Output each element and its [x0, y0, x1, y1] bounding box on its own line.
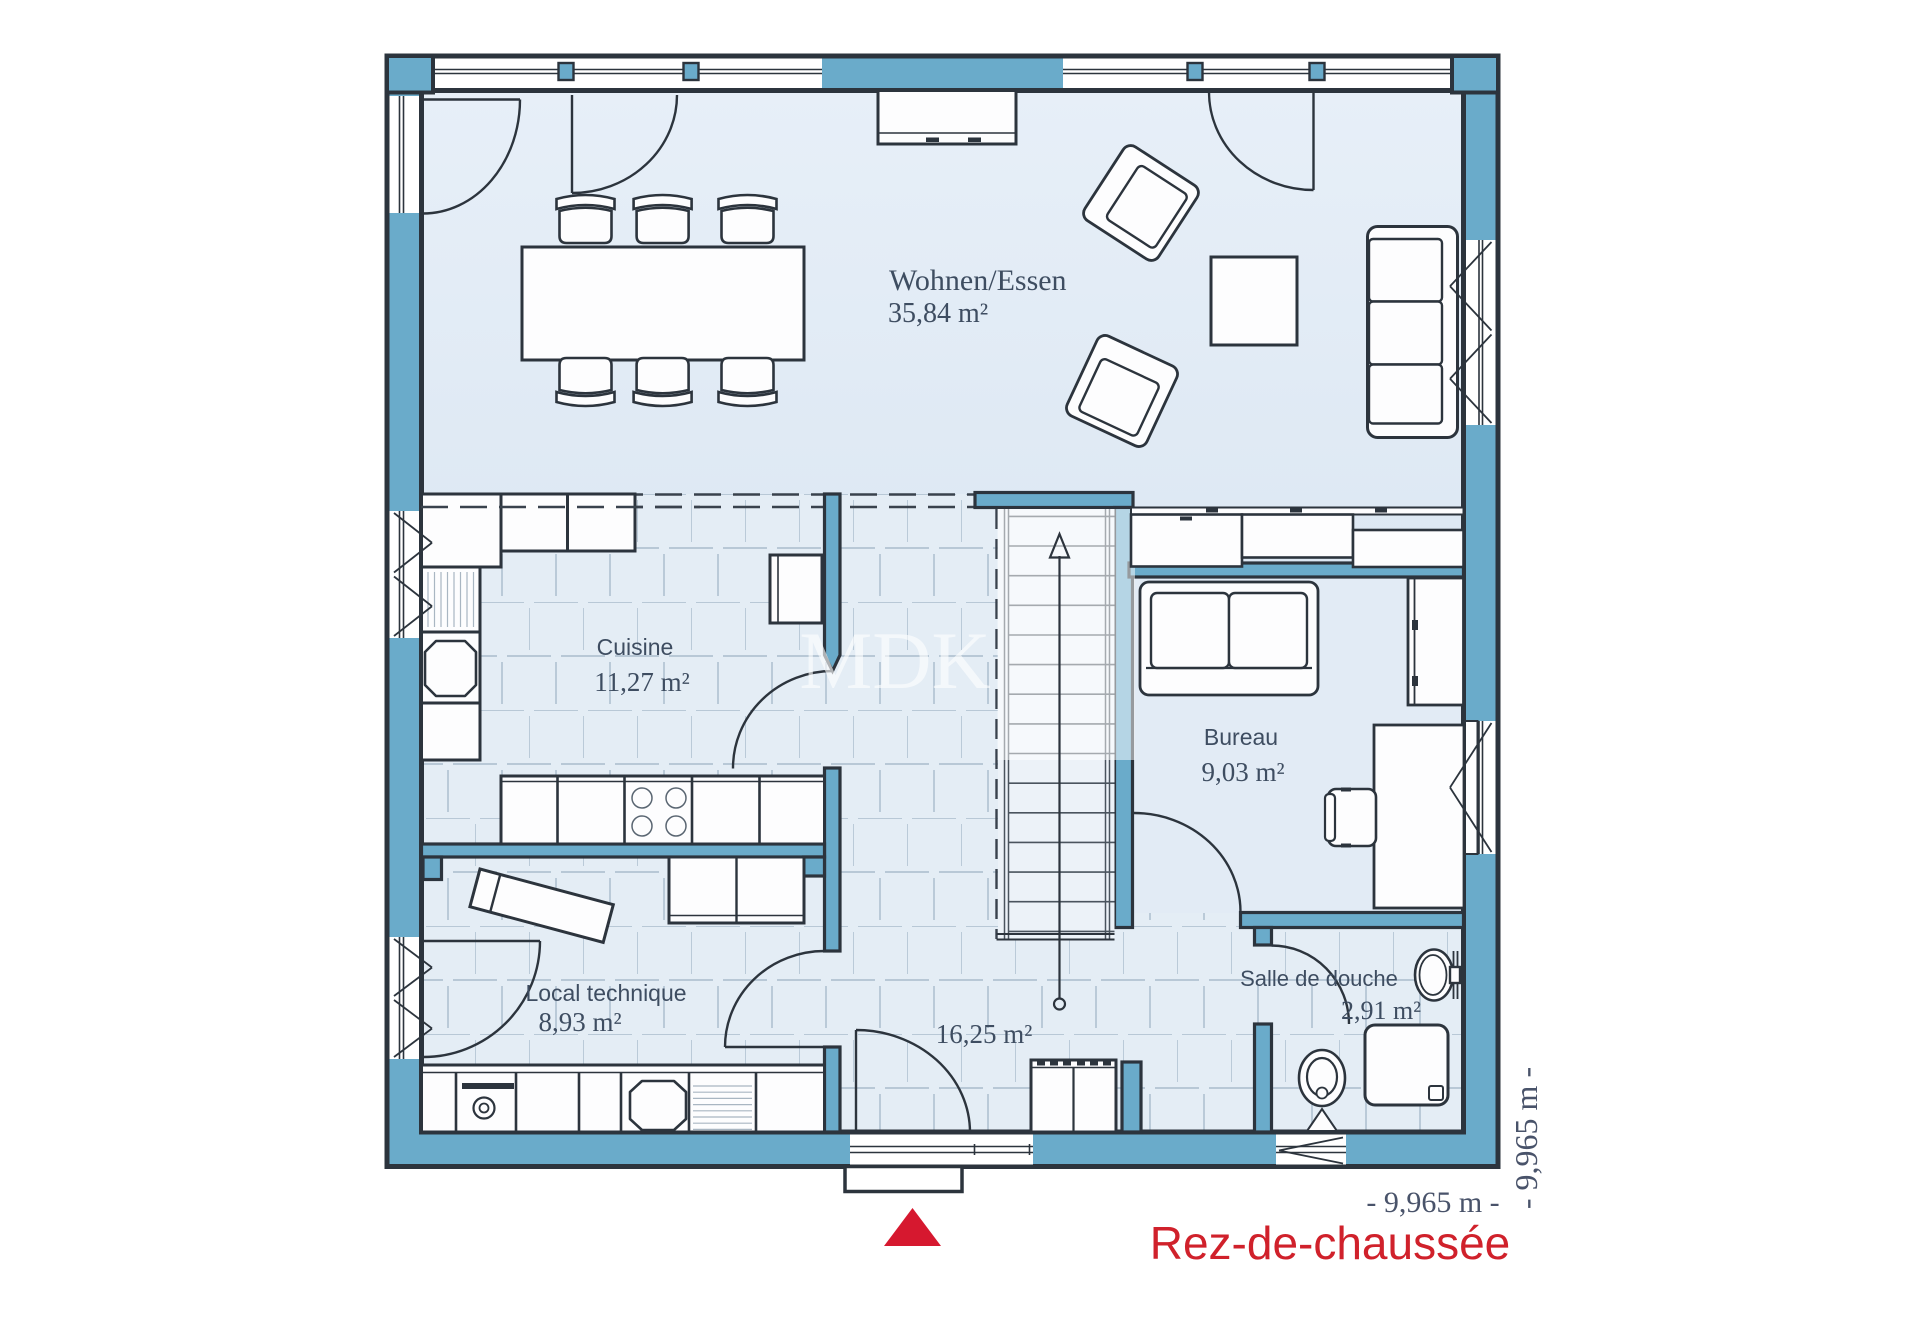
svg-text:8,93 m²: 8,93 m² [538, 1007, 621, 1037]
svg-text:11,27 m²: 11,27 m² [594, 667, 690, 697]
svg-text:16,25 m²: 16,25 m² [936, 1019, 1033, 1049]
svg-text:MDK: MDK [799, 615, 990, 706]
svg-text:- 9,965 m -: - 9,965 m - [1366, 1186, 1499, 1219]
svg-text:Salle de douche: Salle de douche [1240, 966, 1398, 991]
svg-text:Wohnen/Essen: Wohnen/Essen [889, 264, 1067, 297]
svg-text:9,03 m²: 9,03 m² [1201, 757, 1284, 787]
svg-text:Bureau: Bureau [1204, 724, 1278, 750]
svg-text:- 9,965 m -: - 9,965 m - [1508, 1067, 1544, 1209]
svg-text:35,84 m²: 35,84 m² [888, 298, 988, 329]
svg-text:Local technique: Local technique [525, 980, 686, 1006]
svg-text:Rez-de-chaussée: Rez-de-chaussée [1150, 1217, 1511, 1269]
svg-text:Cuisine: Cuisine [597, 634, 674, 660]
svg-text:2,91 m²: 2,91 m² [1341, 996, 1421, 1025]
